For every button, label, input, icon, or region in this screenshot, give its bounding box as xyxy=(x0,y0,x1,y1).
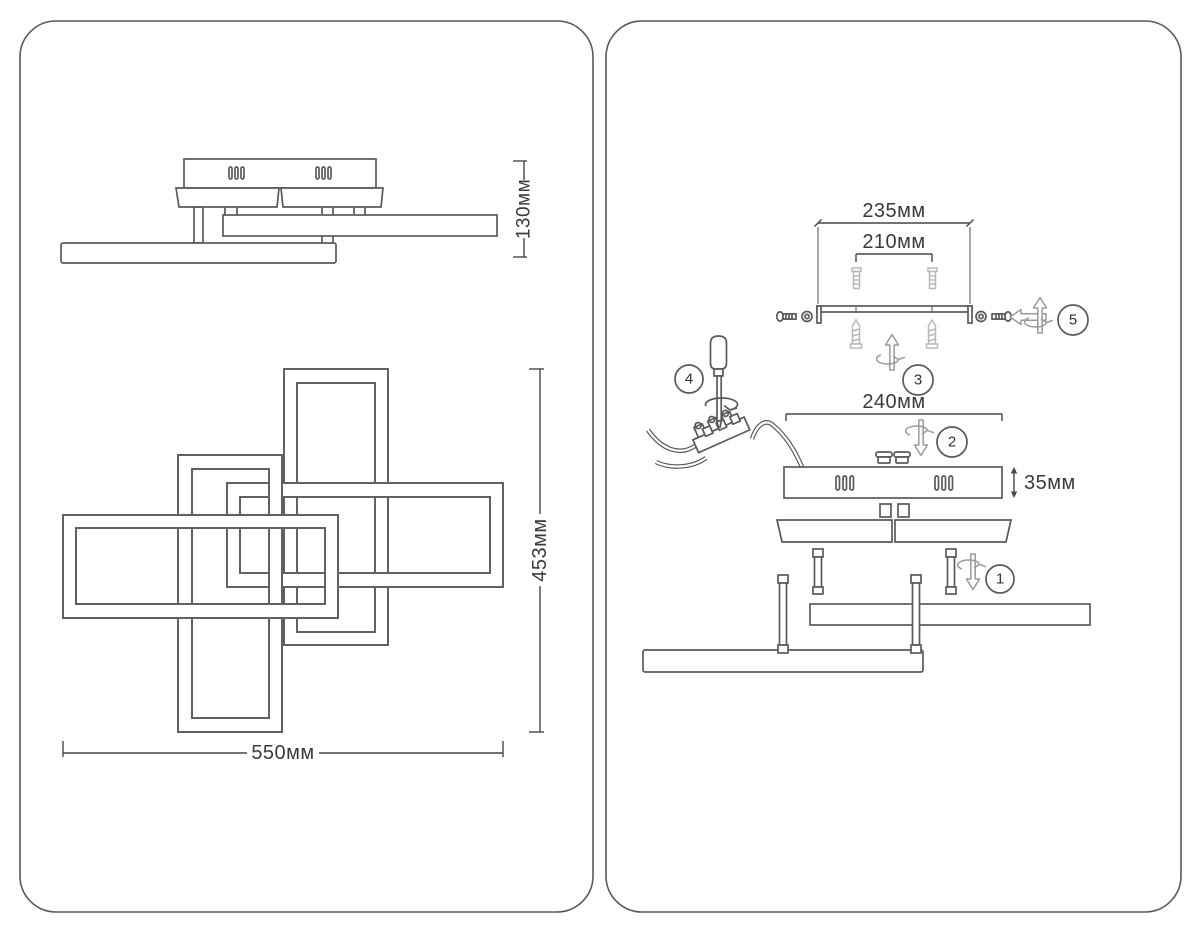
canopy-side xyxy=(184,159,376,188)
wall-plug-icon xyxy=(928,268,937,289)
standoff-rod-long-icon xyxy=(911,575,921,653)
installation-diagram-page: 130мм 453мм 550мм xyxy=(0,0,1200,933)
right-panel: 235мм 210мм xyxy=(606,21,1181,912)
step-5-badge: 5 xyxy=(1058,305,1088,335)
standoff-rod-icon xyxy=(813,549,823,594)
bracket-width-label: 235мм xyxy=(862,200,925,222)
nut-icon xyxy=(894,452,910,463)
step-2-number: 2 xyxy=(948,434,956,451)
step-1-badge: 1 xyxy=(986,565,1014,593)
step-2-badge: 2 xyxy=(937,427,967,457)
bracket-cover xyxy=(777,520,892,542)
step-1-number: 1 xyxy=(996,571,1004,588)
clip-icon xyxy=(880,504,891,517)
lower-frame-bar-side xyxy=(61,243,336,263)
side-screw-icon xyxy=(992,312,1011,321)
side-screw-icon xyxy=(777,312,796,321)
width-550-label: 550мм xyxy=(251,742,314,764)
canopy-height-label: 35мм xyxy=(1024,472,1076,494)
left-panel-border xyxy=(20,21,593,912)
hole-spacing-label: 210мм xyxy=(862,231,925,253)
standoff-rod-long-icon xyxy=(778,575,788,653)
upper-frame-bar xyxy=(810,604,1090,625)
canopy-box xyxy=(784,467,1002,498)
step-4-number: 4 xyxy=(685,371,693,388)
step-5-number: 5 xyxy=(1069,312,1077,329)
washer-icon xyxy=(802,312,812,322)
washer-icon xyxy=(976,312,986,322)
nut-icon xyxy=(876,452,892,463)
standoff-rod-icon xyxy=(946,549,956,594)
step-4-badge: 4 xyxy=(675,365,703,393)
height-130-label: 130мм xyxy=(514,179,535,239)
clip-icon xyxy=(898,504,909,517)
canopy-width-label: 240мм xyxy=(862,391,925,413)
height-453-label: 453мм xyxy=(529,518,551,581)
left-panel: 130мм 453мм 550мм xyxy=(20,21,593,912)
bracket-cover xyxy=(895,520,1011,542)
wall-plug-icon xyxy=(852,268,861,289)
upper-frame-bar-side xyxy=(223,215,497,236)
step-3-number: 3 xyxy=(914,372,922,389)
